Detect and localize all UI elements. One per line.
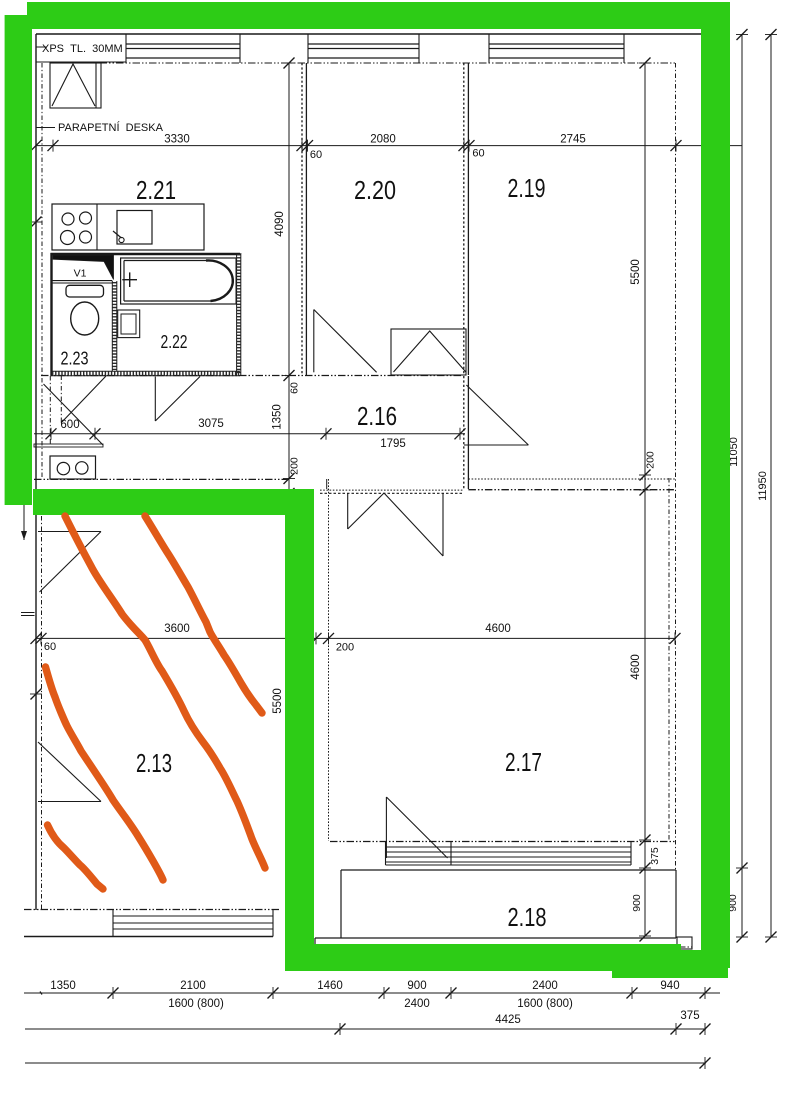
svg-text:2745: 2745: [560, 134, 586, 146]
svg-text:375: 375: [680, 1010, 699, 1022]
svg-text:2400: 2400: [532, 980, 558, 992]
svg-text:2.19: 2.19: [508, 173, 546, 203]
svg-text:5500: 5500: [630, 259, 642, 285]
svg-text:60: 60: [44, 641, 56, 653]
svg-text:2.20: 2.20: [354, 175, 396, 205]
svg-text:2100: 2100: [180, 980, 206, 992]
svg-text:2.21: 2.21: [136, 175, 176, 205]
svg-text:200: 200: [289, 457, 301, 475]
svg-text:2400: 2400: [404, 998, 430, 1010]
svg-text:200: 200: [645, 451, 657, 469]
svg-text:600: 600: [60, 419, 79, 431]
svg-text:1350: 1350: [50, 980, 76, 992]
svg-text:3330: 3330: [164, 134, 190, 146]
svg-text:1600 (800): 1600 (800): [517, 998, 573, 1010]
svg-text:60: 60: [310, 149, 322, 161]
svg-text:4600: 4600: [485, 623, 511, 635]
svg-text:2.16: 2.16: [357, 401, 397, 431]
svg-text:5500: 5500: [272, 688, 284, 714]
svg-text:XPS TL. 30MM: XPS TL. 30MM: [42, 43, 123, 55]
svg-text:2.22: 2.22: [161, 332, 188, 352]
svg-text:PARAPETNÍ DESKA: PARAPETNÍ DESKA: [58, 121, 164, 134]
svg-text:2.17: 2.17: [505, 747, 542, 777]
svg-text:375: 375: [649, 847, 661, 865]
svg-text:2.23: 2.23: [61, 349, 89, 369]
svg-text:2080: 2080: [370, 134, 396, 146]
svg-text:200: 200: [336, 642, 354, 654]
svg-text:900: 900: [631, 894, 643, 912]
svg-text:1350: 1350: [272, 404, 284, 430]
svg-text:2.18: 2.18: [508, 902, 547, 932]
svg-text:1795: 1795: [380, 438, 406, 450]
svg-text:60: 60: [289, 382, 301, 394]
svg-text:11950: 11950: [757, 471, 769, 501]
svg-text:3600: 3600: [164, 623, 190, 635]
svg-text:1600 (800): 1600 (800): [168, 998, 224, 1010]
svg-text:60: 60: [472, 148, 484, 160]
svg-text:1460: 1460: [317, 980, 343, 992]
svg-text:2.13: 2.13: [136, 748, 172, 778]
svg-text:V1: V1: [74, 268, 87, 280]
svg-text:4425: 4425: [495, 1014, 521, 1026]
svg-text:3075: 3075: [198, 418, 224, 430]
svg-text:900: 900: [407, 980, 426, 992]
svg-text:4600: 4600: [630, 654, 642, 680]
svg-text:4090: 4090: [274, 211, 286, 237]
svg-text:940: 940: [660, 980, 679, 992]
